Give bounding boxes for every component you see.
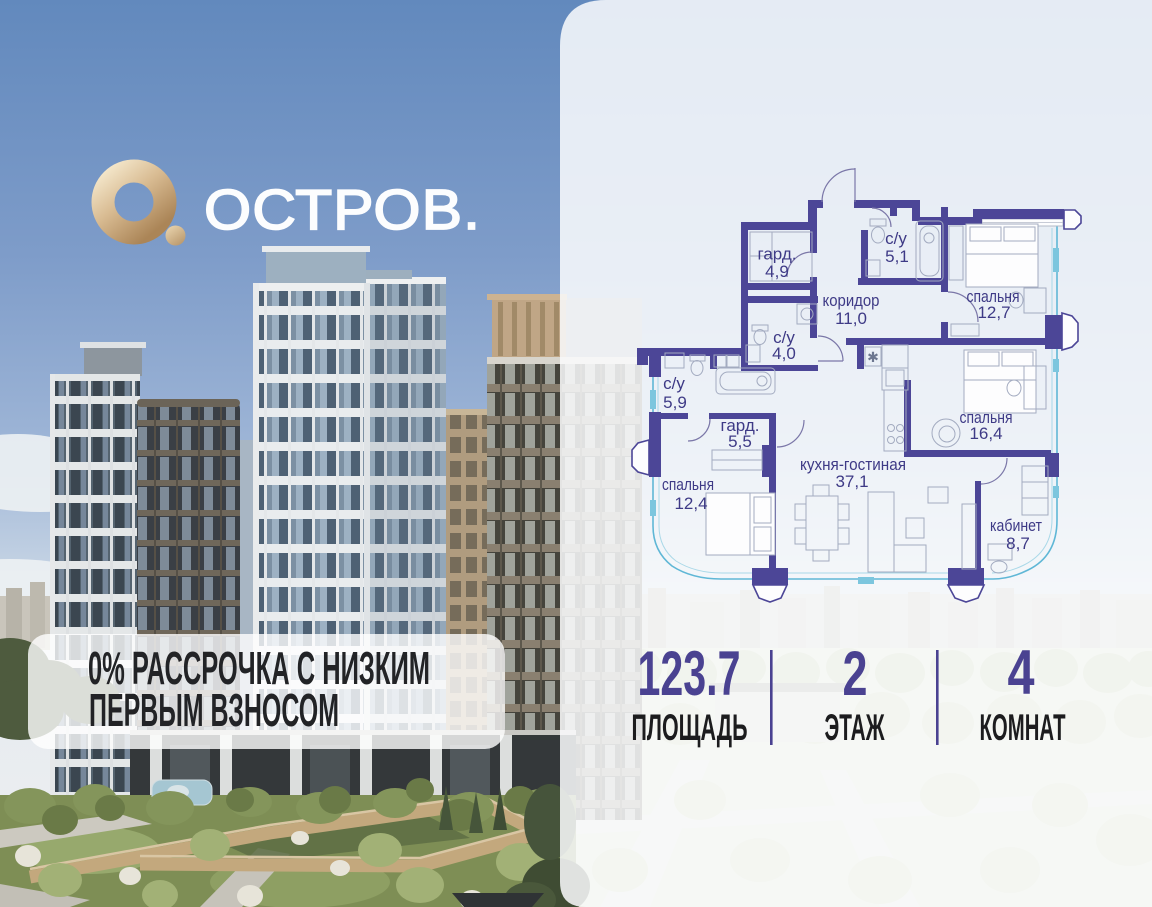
svg-text:2: 2 <box>843 639 868 709</box>
svg-text:ОСТРОВ.: ОСТРОВ. <box>204 178 481 242</box>
svg-text:12,4: 12,4 <box>674 494 707 513</box>
svg-text:с/у: с/у <box>885 229 907 248</box>
svg-text:ЭТАЖ: ЭТАЖ <box>825 707 885 748</box>
svg-text:5,1: 5,1 <box>885 247 909 266</box>
svg-text:4,0: 4,0 <box>772 344 796 363</box>
svg-text:5,9: 5,9 <box>663 393 687 412</box>
svg-text:5,5: 5,5 <box>728 432 752 451</box>
svg-text:123.7: 123.7 <box>638 639 741 709</box>
svg-text:4: 4 <box>1008 638 1035 708</box>
svg-text:ПЛОЩАДЬ: ПЛОЩАДЬ <box>632 707 748 748</box>
svg-text:гард.: гард. <box>758 245 797 264</box>
svg-text:12,7: 12,7 <box>977 303 1010 322</box>
svg-text:4,9: 4,9 <box>765 262 789 281</box>
svg-text:11,0: 11,0 <box>835 309 867 328</box>
svg-text:✱: ✱ <box>867 349 879 365</box>
svg-text:8,7: 8,7 <box>1006 534 1030 553</box>
svg-text:КОМНАТ: КОМНАТ <box>980 707 1066 748</box>
svg-text:с/у: с/у <box>663 374 685 393</box>
svg-text:ПЕРВЫМ ВЗНОСОМ: ПЕРВЫМ ВЗНОСОМ <box>89 684 339 736</box>
svg-text:16,4: 16,4 <box>969 424 1002 443</box>
svg-text:кабинет: кабинет <box>990 516 1042 535</box>
svg-text:спальня: спальня <box>662 475 714 494</box>
svg-text:коридор: коридор <box>823 291 880 310</box>
svg-text:37,1: 37,1 <box>835 472 868 491</box>
